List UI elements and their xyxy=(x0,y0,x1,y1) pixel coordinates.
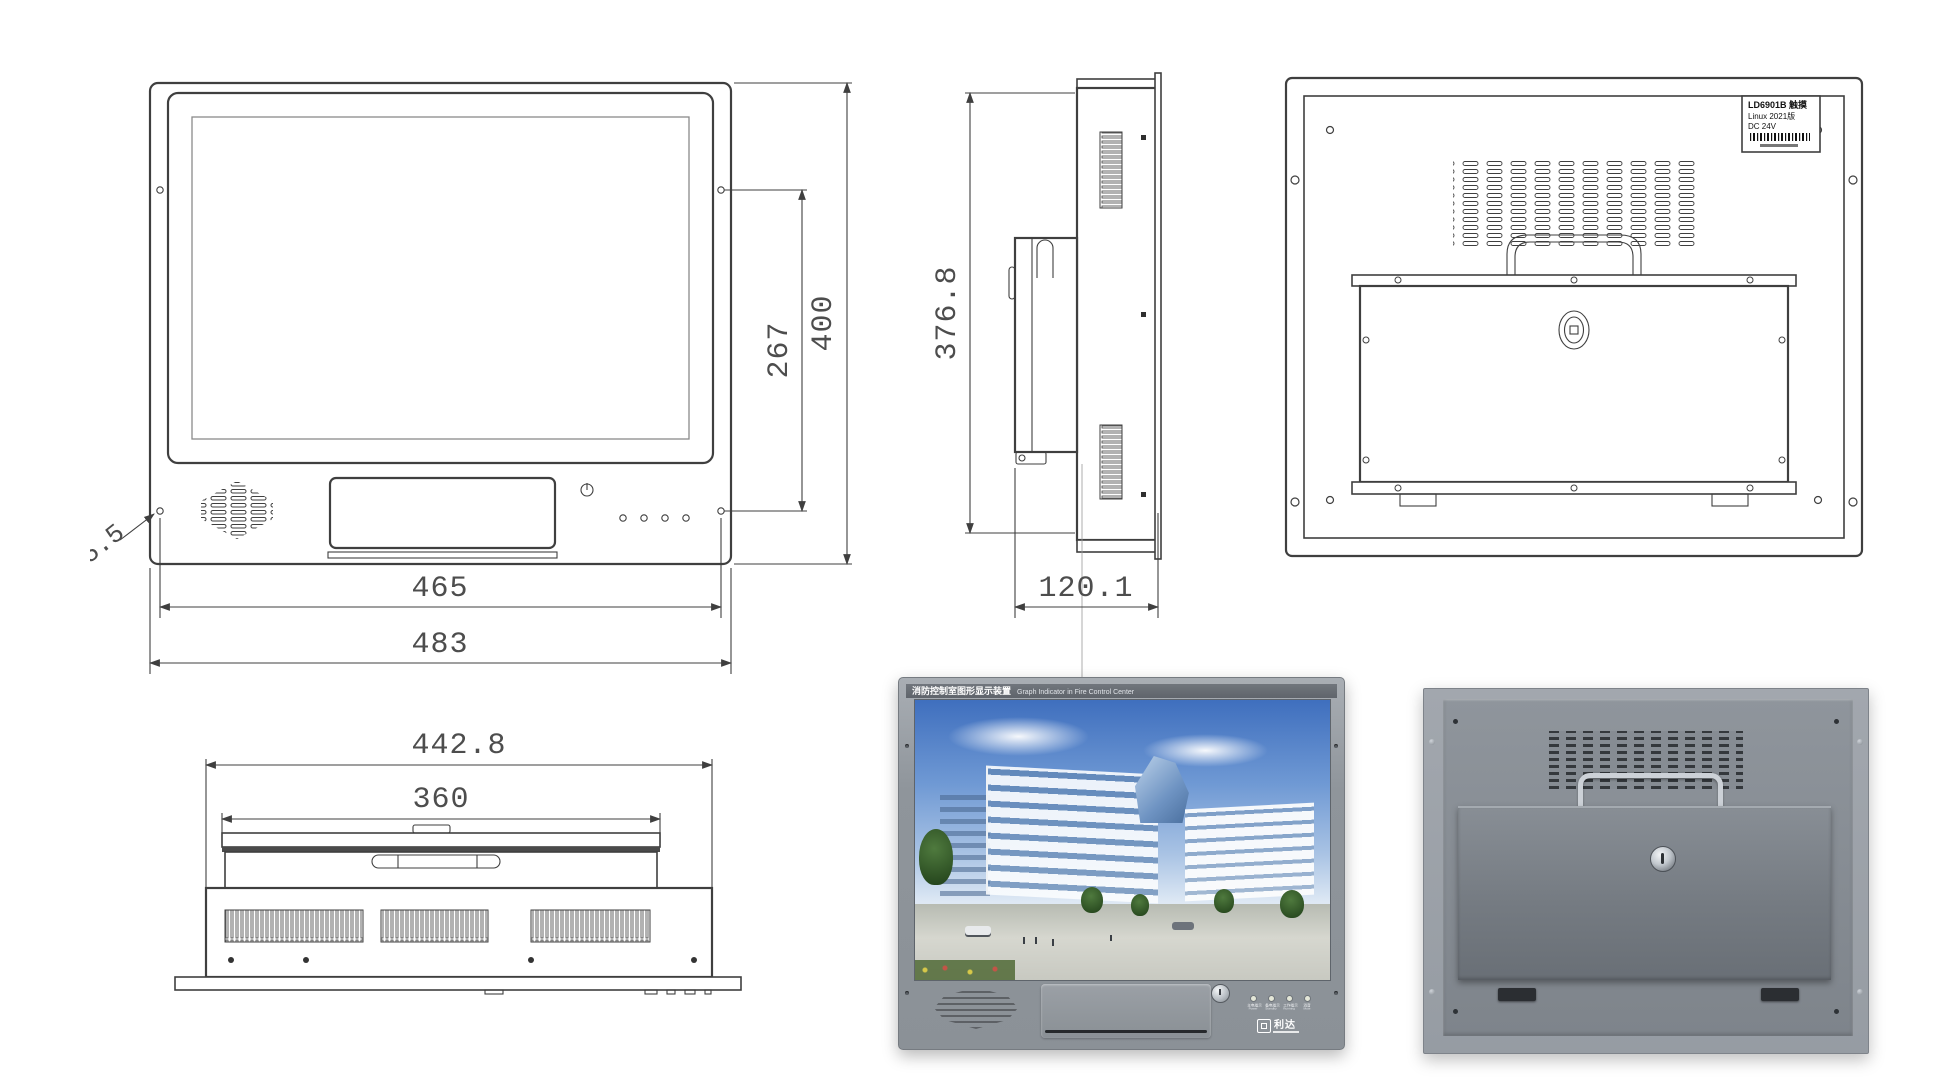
screw xyxy=(1141,312,1146,317)
top-lip xyxy=(1077,79,1160,88)
back-vents xyxy=(1453,160,1695,246)
flange-hole xyxy=(1429,989,1435,995)
label-os: Linux 2021版 xyxy=(1748,111,1795,121)
photo-screen xyxy=(914,699,1331,981)
led-indicator xyxy=(1286,995,1293,1002)
enclosure-box xyxy=(225,852,657,888)
enclosure-lip xyxy=(222,833,660,847)
led-label-en: Mute xyxy=(1301,1008,1312,1012)
person xyxy=(1035,937,1037,944)
led-indicator xyxy=(1304,995,1311,1002)
person xyxy=(1110,935,1112,941)
flowerbed xyxy=(915,960,1015,980)
rear-box-profile xyxy=(1015,238,1077,452)
top-tab xyxy=(413,825,450,833)
cover-foot-photo xyxy=(1498,988,1536,1001)
label-power: DC 24V xyxy=(1748,122,1777,131)
bezel-screw xyxy=(1334,991,1338,995)
tree xyxy=(1131,894,1149,916)
rear-cover xyxy=(1458,806,1831,980)
tree xyxy=(919,829,953,885)
vent-strip xyxy=(381,910,488,942)
bezel-screw xyxy=(905,744,909,748)
logo-icon xyxy=(1257,1019,1271,1033)
vent-strip xyxy=(531,910,650,942)
led-indicator xyxy=(1250,995,1257,1002)
hole-callout: 4-Ø5.5 xyxy=(90,514,154,599)
screw xyxy=(1141,492,1146,497)
building-right xyxy=(1185,803,1314,902)
side-view-drawing: 376.8 120.1 xyxy=(925,40,1195,700)
dim-text-376-8: 376.8 xyxy=(931,265,965,360)
side-vent-top xyxy=(1100,132,1122,208)
dim-text-120-1: 120.1 xyxy=(1038,572,1133,606)
logo-text: 利达 xyxy=(1274,1021,1296,1031)
latch xyxy=(1016,452,1046,464)
dim-text-483: 483 xyxy=(411,628,468,662)
front-panel-outline xyxy=(150,83,731,564)
bezel-screw xyxy=(905,991,909,995)
dim-text-465: 465 xyxy=(411,572,468,606)
led-label-en: Running xyxy=(1283,1008,1294,1012)
front-view-drawing: 267 400 465 483 4-Ø5.5 xyxy=(90,40,860,700)
hole-callout-text: 4-Ø5.5 xyxy=(90,518,131,599)
dim-text-442-8: 442.8 xyxy=(411,729,506,763)
dim-267: 267 xyxy=(724,190,807,511)
brand-logo: 利达 xyxy=(1257,1019,1296,1033)
drawing-sheet: 267 400 465 483 4-Ø5.5 xyxy=(0,0,1936,1088)
panel-screw xyxy=(1834,719,1839,724)
back-inner-panel-photo xyxy=(1443,699,1853,1036)
front-product-photo: 消防控制室图形显示装置Graph Indicator in Fire Contr… xyxy=(898,677,1345,1050)
led-label-en: Power xyxy=(1247,1008,1258,1012)
label-model: LD6901B 触摸 xyxy=(1748,99,1808,110)
cloud xyxy=(948,717,1089,756)
logo-subline xyxy=(1273,1031,1299,1033)
car xyxy=(1172,922,1194,930)
front-flange-strip xyxy=(175,977,741,990)
led-mute: 消音Mute xyxy=(1296,995,1318,1018)
back-product-photo xyxy=(1423,688,1869,1054)
dim-text-360: 360 xyxy=(412,783,469,817)
building-main xyxy=(986,766,1158,904)
flange-hole xyxy=(1857,739,1863,745)
tree xyxy=(1280,890,1304,918)
tray-slot-photo xyxy=(1045,1030,1207,1033)
bottom-view-drawing: 442.8 360 xyxy=(140,715,780,1025)
tray-photo xyxy=(1041,984,1211,1038)
back-view-drawing: LD6901B 触摸 Linux 2021版 DC 24V xyxy=(1270,40,1890,600)
cover-foot-photo xyxy=(1761,988,1799,1001)
screw xyxy=(1141,135,1146,140)
photo-banner: 消防控制室图形显示装置Graph Indicator in Fire Contr… xyxy=(906,684,1337,698)
led-indicator xyxy=(1268,995,1275,1002)
power-button[interactable] xyxy=(1211,984,1230,1003)
flange-hole xyxy=(1857,989,1863,995)
bezel-screw xyxy=(1334,744,1338,748)
front-tray xyxy=(330,478,555,548)
panel-screw xyxy=(1453,1009,1458,1014)
tree xyxy=(1214,889,1234,913)
panel-screw xyxy=(1453,719,1458,724)
front-flange xyxy=(1155,73,1161,559)
flange-hole xyxy=(1429,739,1435,745)
dim-text-267: 267 xyxy=(763,321,797,378)
person xyxy=(1052,939,1054,946)
panel-screw xyxy=(1834,1009,1839,1014)
screen-bezel xyxy=(168,93,713,463)
bottom-lip xyxy=(1077,540,1160,552)
lock-cylinder[interactable] xyxy=(1650,846,1676,872)
vent-strip xyxy=(225,910,363,942)
led-label-en: Standby xyxy=(1265,1008,1276,1012)
side-vent-bottom xyxy=(1100,425,1122,499)
banner-text-en: Graph Indicator in Fire Control Center xyxy=(1017,689,1134,696)
cover-plate xyxy=(1360,286,1788,482)
label-barcode xyxy=(1748,133,1810,141)
spec-label: LD6901B 触摸 Linux 2021版 DC 24V xyxy=(1742,96,1820,152)
back-panel-outline: LD6901B 触摸 Linux 2021版 DC 24V xyxy=(1286,78,1862,556)
speaker-grille-photo xyxy=(934,987,1018,1029)
banner-text-cn: 消防控制室图形显示装置 xyxy=(912,686,1011,696)
dim-text-400: 400 xyxy=(807,294,841,351)
car xyxy=(965,926,991,935)
person xyxy=(1023,937,1025,944)
bottom-body xyxy=(175,825,741,994)
label-serial xyxy=(1760,144,1798,147)
tree xyxy=(1081,887,1103,913)
